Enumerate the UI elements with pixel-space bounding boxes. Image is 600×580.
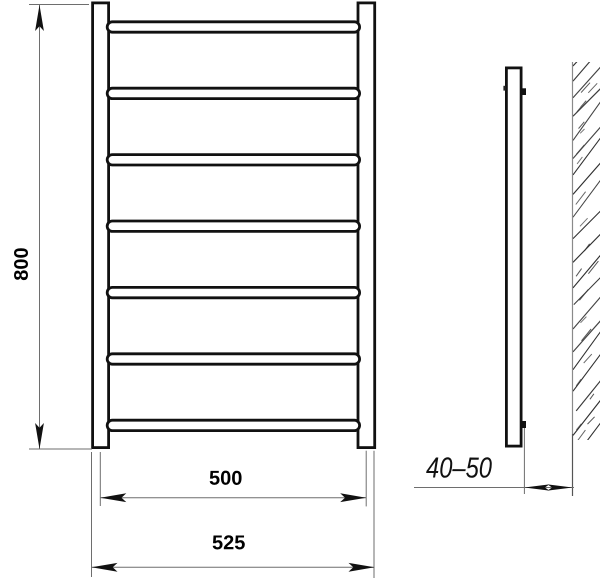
svg-text:500: 500 bbox=[209, 468, 242, 490]
svg-text:525: 525 bbox=[212, 532, 245, 554]
svg-text:40–50: 40–50 bbox=[426, 452, 492, 484]
svg-text:800: 800 bbox=[11, 247, 33, 280]
